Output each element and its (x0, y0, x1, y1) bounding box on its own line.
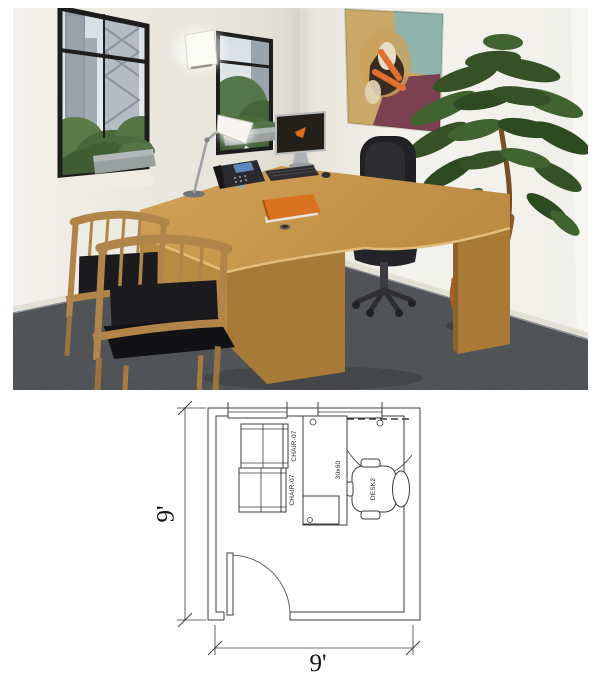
plan-guest-chair-1-label: CHAIR-07 (291, 430, 298, 461)
plan-task-chair-label: DESK2 (370, 478, 377, 501)
mouse (322, 172, 331, 178)
dim-bottom: 9' (208, 625, 420, 675)
sconce-light (174, 28, 226, 72)
dim-bottom-label: 9' (309, 650, 326, 675)
dim-left-label: 9' (153, 505, 180, 522)
floor-plan: 30x60 DESK2 CHAIR-07 (150, 393, 450, 675)
room-render-image (13, 8, 588, 390)
dim-left: 9' (153, 401, 206, 627)
plan-guest-chair-2-label: CHAIR-07 (289, 474, 296, 505)
plan-window-1 (228, 402, 287, 418)
plan-desk-label: 30x60 (335, 460, 342, 479)
plan-pedestal (303, 496, 339, 524)
office-design-composite: 30x60 DESK2 CHAIR-07 (0, 0, 600, 675)
